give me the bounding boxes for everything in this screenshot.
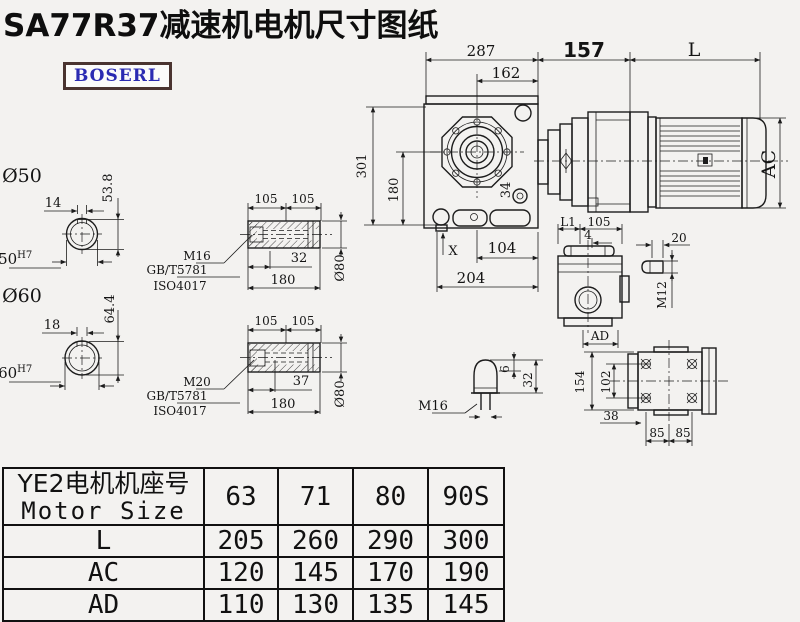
table-cell: 120: [204, 557, 278, 589]
sleeve1-dia: Ø80: [333, 254, 348, 281]
motor-size-header-cell: YE2电机机座号 Motor Size: [3, 468, 204, 525]
shaft60-bore-label: Ø60H7: [0, 364, 32, 382]
dim-AD: AD: [590, 329, 609, 343]
table-cell: 130: [278, 589, 353, 621]
shaft50-label: Ø50: [2, 165, 42, 187]
motor-size-table: YE2电机机座号 Motor Size 63 71 80 90S L 205 2…: [2, 467, 505, 622]
sleeve1-bolt-len: 32: [291, 251, 308, 266]
dim-6: 6: [498, 365, 512, 373]
sleeve-detail-2: 105 105 37 180 Ø80 M20 GB/T5781 ISO4017: [147, 314, 349, 418]
dim-4: 4: [584, 228, 592, 242]
table-cell: 110: [204, 589, 278, 621]
dim-20: 20: [671, 231, 686, 245]
table-row-AD: AD 110 130 135 145: [3, 589, 504, 621]
shaft50-key-height: 53.8: [101, 174, 116, 203]
shaft60-label: Ø60: [2, 285, 42, 307]
adapter-housing: [538, 112, 630, 212]
page: { "title": "SA77R37减速机电机尺寸图纸", "logo": {…: [0, 0, 800, 613]
ac-dimension: AC: [744, 118, 786, 208]
key-detail: 20 M12: [636, 231, 690, 309]
sleeve2-total-len: 180: [271, 397, 296, 412]
shaft50-key-width: 14: [45, 196, 62, 211]
bottom-dimensions: X 104 204: [437, 230, 538, 292]
table-row-AC: AC 120 145 170 190: [3, 557, 504, 589]
dim-104: 104: [488, 239, 517, 257]
sleeve2-105b: 105: [292, 314, 315, 328]
table-cell: 170: [353, 557, 428, 589]
table-cell: 205: [204, 525, 278, 557]
sleeve2-thread: M20: [183, 375, 211, 389]
table-cell: 135: [353, 589, 428, 621]
sleeve1-thread: M16: [183, 249, 211, 263]
dim-32-cone: 32: [521, 372, 535, 387]
gearbox-front-view: 34: [424, 96, 538, 231]
dim-AC: AC: [758, 150, 780, 179]
sleeve1-total-len: 180: [271, 273, 296, 288]
motor-size-header-en: Motor Size: [4, 498, 203, 524]
motor-size-header-cn: YE2电机机座号: [4, 469, 203, 498]
dim-162: 162: [492, 64, 521, 82]
left-dimensions: 301 180: [355, 107, 442, 225]
dim-L: L: [688, 39, 701, 61]
dim-154: 154: [573, 370, 587, 393]
table-cell: 190: [428, 557, 504, 589]
dim-38: 38: [603, 409, 618, 423]
table-cell: 300: [428, 525, 504, 557]
brand-logo: BOSERL: [63, 62, 172, 90]
dim-157: 157: [563, 38, 605, 62]
dim-85a: 85: [649, 426, 664, 440]
dim-287: 287: [467, 42, 496, 60]
brand-logo-text: BOSERL: [74, 66, 161, 86]
stud-cone-detail: 6 32 M16: [418, 352, 543, 417]
sleeve2-dia: Ø80: [333, 380, 348, 407]
top-dimensions: 287 162 157 L: [426, 38, 760, 120]
shaft60-key-height: 64.4: [103, 295, 118, 324]
table-cell: 290: [353, 525, 428, 557]
dim-M12: M12: [655, 281, 669, 309]
dim-34: 34: [499, 182, 514, 199]
table-cell: 260: [278, 525, 353, 557]
table-cell: 145: [428, 589, 504, 621]
sleeve1-std1: GB/T5781: [147, 263, 208, 277]
dim-X: X: [448, 244, 458, 259]
gearbox-side-view: L1 105 4 AD: [558, 215, 629, 348]
row-label-AD: AD: [3, 589, 204, 621]
size-71-header: 71: [278, 468, 353, 525]
gearbox-top-view: 154 102 38 85 85: [573, 340, 730, 446]
shaft-section-50: Ø50 14 53.8 Ø50H7: [0, 165, 124, 268]
sleeve-detail-1: 105 105 32 180 Ø80 M16 GB/T5781 ISO4017: [147, 192, 349, 293]
sleeve2-105a: 105: [255, 314, 278, 328]
table-cell: 145: [278, 557, 353, 589]
sleeve2-std2: ISO4017: [153, 404, 206, 418]
dim-L1: L1: [560, 215, 576, 229]
row-label-L: L: [3, 525, 204, 557]
row-label-AC: AC: [3, 557, 204, 589]
sleeve1-std2: ISO4017: [153, 279, 206, 293]
dim-102: 102: [599, 371, 613, 394]
dim-180: 180: [387, 178, 402, 203]
dim-204: 204: [457, 269, 486, 287]
dim-85b: 85: [675, 426, 690, 440]
size-80-header: 80: [353, 468, 428, 525]
dim-105-side: 105: [588, 215, 611, 229]
page-title: SA77R37减速机电机尺寸图纸: [3, 0, 438, 45]
dim-M16-cone: M16: [418, 399, 448, 414]
table-header-row: YE2电机机座号 Motor Size 63 71 80 90S: [3, 468, 504, 525]
shaft-section-60: Ø60 18 64.4 Ø60H7: [0, 285, 124, 390]
shaft60-key-width: 18: [44, 318, 61, 333]
sleeve1-105a: 105: [255, 192, 278, 206]
size-63-header: 63: [204, 468, 278, 525]
dim-301: 301: [355, 154, 370, 179]
sleeve2-std1: GB/T5781: [147, 389, 208, 403]
sleeve2-bolt-len: 37: [293, 374, 310, 389]
shaft50-bore-label: Ø50H7: [0, 250, 32, 268]
sleeve1-105b: 105: [292, 192, 315, 206]
table-row-L: L 205 260 290 300: [3, 525, 504, 557]
size-90s-header: 90S: [428, 468, 504, 525]
